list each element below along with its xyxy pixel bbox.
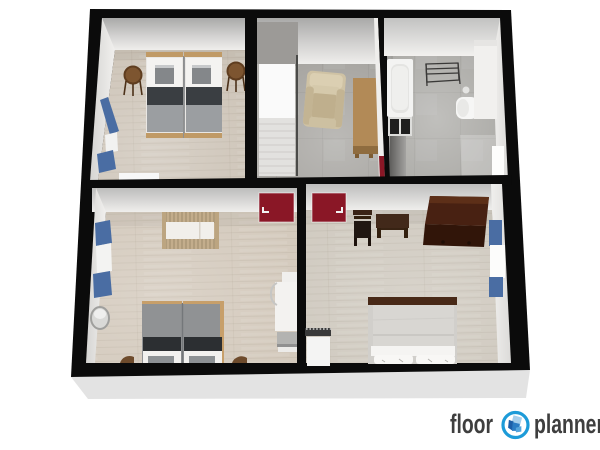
svg-text:planner: planner: [534, 409, 600, 439]
svg-text:floor: floor: [450, 409, 493, 439]
